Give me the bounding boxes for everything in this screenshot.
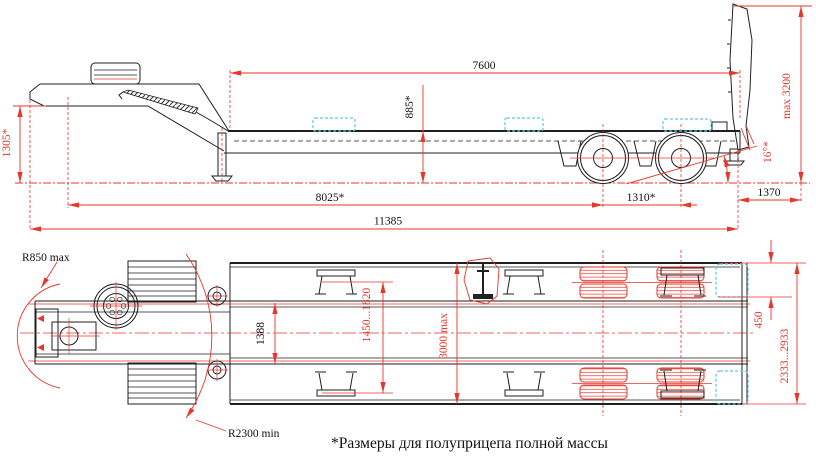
spare-wheel-box [91,63,140,84]
stowed-ramps [128,261,196,404]
dim-frame-width: 1388 [255,322,267,345]
gooseneck [30,63,229,151]
dim-adjustable-width: 1450...1820 [361,287,373,342]
top-view: R850 max R2300 min [17,250,756,440]
dim-overall-length: 11385 [374,216,403,228]
drawing-canvas: 7600 885* max 3200 1305* 8025* 1310* 137… [0,0,816,461]
dim-axle-spacing: 1310* [627,192,656,204]
dim-deck-height: 885* [404,95,416,118]
dim-rear-gap: 450 [753,311,765,329]
ramp-hinge-bracket [712,122,727,131]
technical-drawing: 7600 885* max 3200 1305* 8025* 1310* 137… [0,0,816,461]
dim-rear-width-range: 2333...2933 [779,328,791,383]
stake-pin-detail [464,258,499,304]
stake-box [505,118,543,131]
stowed-ramp-strip [123,90,198,114]
dim-rear-overhang: 1370 [758,187,781,199]
stake-box [313,118,355,131]
dim-rear-radius: R2300 min [228,428,280,440]
raised-ramp [727,4,754,150]
stake-box [663,119,711,131]
side-view-dimensions: 7600 885* max 3200 1305* 8025* 1310* 137… [1,6,812,230]
dim-gooseneck-height: 1305* [1,128,13,157]
dim-platform-length: 7600 [473,60,496,72]
dim-front-radius: R850 max [22,252,70,264]
frame-rails [28,301,750,364]
rear-bumper [742,263,747,404]
footnote: *Размеры для полуприцепа полной массы [331,435,609,452]
dim-kingpin-base: 8025* [316,192,345,204]
dim-overall-width: 3000 max [438,313,450,359]
rear-corner-box [716,264,748,297]
top-view-dimensions: 3000 max 1388 1450...1820 450 2333...293… [255,240,806,404]
rear-corner-box [716,371,748,404]
swing-radii: R850 max R2300 min [17,252,279,440]
dim-departure-angle: 16°* [762,141,774,163]
rear-support-jack [724,149,744,165]
gooseneck-top [35,301,100,364]
landing-gear [212,128,232,182]
spare-wheel [90,282,142,330]
dim-ramp-height: max 3200 [781,73,793,119]
